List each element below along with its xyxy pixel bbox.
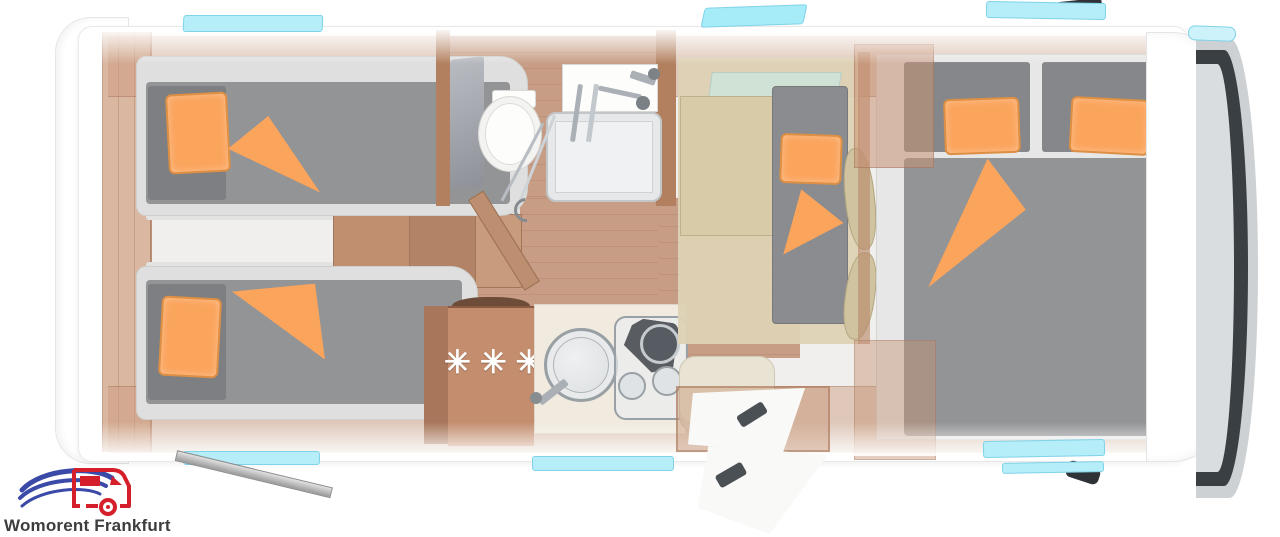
wardrobe (854, 44, 934, 168)
stove-burner-small (618, 372, 646, 400)
pillow (165, 91, 231, 174)
dinette-bench (680, 96, 778, 236)
window (1002, 461, 1104, 474)
window (700, 4, 807, 28)
fridge-freezer-symbol: ✳✳✳ (444, 340, 536, 384)
pillow (158, 295, 222, 378)
pillow (779, 133, 843, 185)
stove-burner-large (640, 324, 680, 364)
bathroom-wall-left (436, 30, 450, 206)
shower-head-icon (636, 96, 650, 110)
pillow (1069, 96, 1152, 156)
sink-faucet-knob (530, 392, 542, 404)
logo-rv-icon (8, 460, 158, 516)
double-bed-mattress (904, 158, 1156, 436)
window (986, 1, 1106, 20)
window (532, 456, 674, 471)
windshield-glass (1196, 64, 1234, 472)
washbasin-faucet-head (648, 68, 660, 80)
toilet (478, 96, 542, 172)
logo: Womorent Frankfurt (4, 460, 234, 536)
wardrobe (854, 340, 936, 460)
window (1188, 25, 1236, 42)
shower-tray (546, 112, 662, 202)
pillow (943, 97, 1021, 156)
window (183, 15, 324, 32)
entry-door-outer (698, 446, 828, 534)
motorhome-floorplan: ✳✳✳ (0, 0, 1280, 537)
window (983, 439, 1105, 458)
logo-text: Womorent Frankfurt (4, 516, 171, 536)
